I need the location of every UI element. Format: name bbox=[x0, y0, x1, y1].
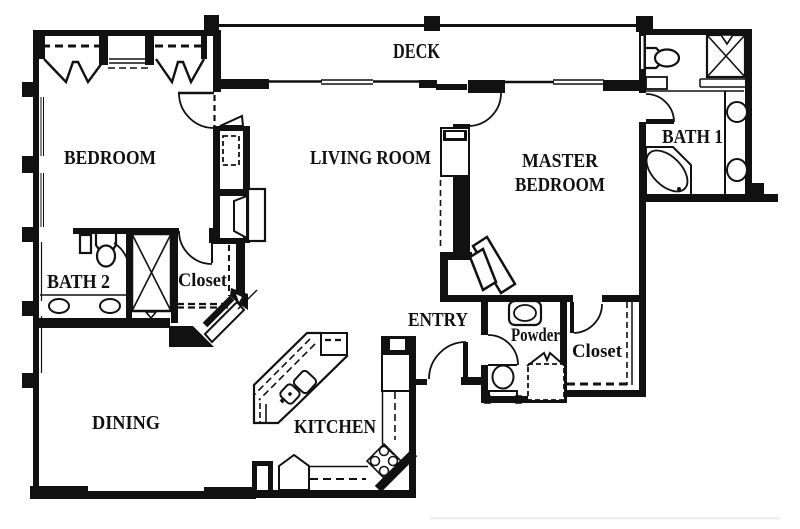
svg-text:Closet: Closet bbox=[178, 270, 228, 291]
svg-text:KITCHEN: KITCHEN bbox=[294, 416, 376, 438]
svg-text:BATH 2: BATH 2 bbox=[47, 272, 110, 293]
svg-text:BATH 1: BATH 1 bbox=[662, 127, 723, 148]
svg-text:ENTRY: ENTRY bbox=[408, 309, 468, 331]
svg-text:Closet: Closet bbox=[572, 341, 623, 362]
svg-text:LIVING ROOM: LIVING ROOM bbox=[310, 147, 431, 169]
svg-text:DINING: DINING bbox=[92, 412, 160, 434]
svg-text:Powder: Powder bbox=[511, 325, 560, 346]
svg-text:MASTER: MASTER bbox=[522, 150, 598, 172]
svg-text:BEDROOM: BEDROOM bbox=[515, 174, 605, 196]
svg-text:BEDROOM: BEDROOM bbox=[64, 147, 156, 169]
svg-text:DECK: DECK bbox=[393, 39, 441, 63]
